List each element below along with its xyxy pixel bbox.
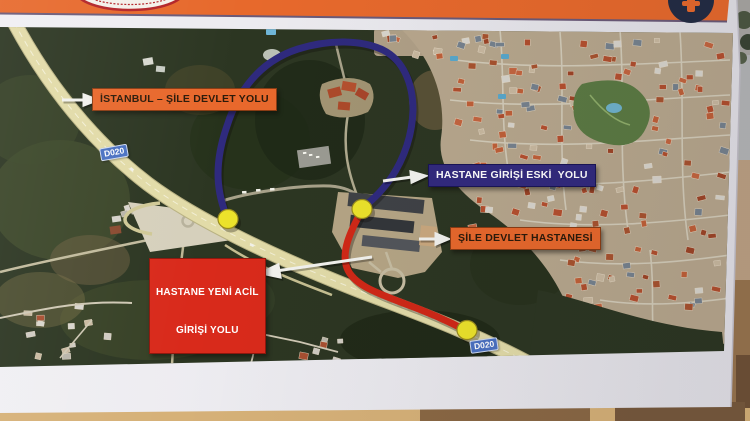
house-roof: [485, 207, 493, 214]
house-roof: [528, 202, 536, 209]
house-roof: [694, 298, 702, 304]
house-roof: [656, 97, 664, 103]
house-roof: [467, 101, 474, 106]
callout-istanbul-sile-road: İSTANBUL – ŞİLE DEVLET YOLU: [92, 88, 277, 111]
house-roof: [633, 39, 642, 46]
house-roof: [521, 102, 530, 108]
house-roof: [708, 233, 716, 238]
house-roof: [714, 260, 721, 266]
house-roof: [496, 109, 503, 114]
house-roof: [586, 144, 592, 149]
house-roof: [621, 204, 629, 210]
house-roof: [580, 40, 588, 48]
house-roof: [716, 52, 725, 59]
house-roof: [299, 352, 309, 360]
house-roof: [499, 131, 507, 138]
house-roof: [659, 85, 666, 90]
house-roof: [478, 129, 484, 135]
house-roof: [530, 145, 537, 150]
house-roof: [563, 125, 571, 130]
house-roof: [608, 149, 614, 154]
house-roof: [524, 188, 531, 196]
house-roof: [684, 160, 691, 166]
house-roof: [627, 272, 635, 278]
marker-junction-west: [218, 210, 238, 229]
house-roof: [489, 60, 497, 66]
house-roof: [695, 208, 703, 215]
house-roof: [706, 112, 714, 119]
callout-sile-state-hospital: ŞİLE DEVLET HASTANESİ: [450, 227, 601, 250]
house-roof: [652, 176, 661, 183]
house-roof: [475, 35, 482, 42]
signboard-photo: İSTANBUL – ŞİLE DEVLET YOLU HASTANE GİRİ…: [0, 0, 750, 421]
house-roof: [706, 105, 714, 113]
house-roof: [37, 315, 45, 321]
house-roof: [630, 61, 636, 67]
house-roof: [576, 214, 582, 220]
house-roof: [615, 73, 623, 80]
house-roof: [715, 195, 724, 200]
house-roof: [603, 56, 613, 63]
house-roof: [517, 88, 524, 94]
house-roof: [695, 288, 703, 294]
house-roof: [596, 273, 605, 281]
satellite-map: [0, 22, 735, 370]
house-roof: [696, 70, 703, 76]
house-roof: [525, 39, 531, 46]
house-roof: [516, 70, 523, 76]
house-roof: [605, 43, 615, 50]
house-roof: [531, 83, 539, 90]
house-roof: [436, 53, 443, 59]
house-roof: [501, 75, 510, 83]
house-roof: [686, 75, 693, 80]
marker-junction-east: [457, 321, 477, 340]
house-roof: [432, 35, 438, 40]
callout-line-2: GİRİŞİ YOLU: [156, 325, 259, 338]
callout-new-emergency-road: HASTANE YENİ ACİL GİRİŞİ YOLU: [149, 258, 266, 354]
house-roof: [505, 111, 512, 116]
house-roof: [495, 42, 504, 46]
house-roof: [651, 126, 658, 132]
house-roof: [510, 88, 517, 94]
house-roof: [581, 284, 588, 291]
house-roof: [35, 353, 42, 360]
house-roof: [567, 259, 575, 266]
house-roof: [483, 38, 489, 44]
house-roof: [498, 114, 505, 119]
house-roof: [635, 246, 642, 252]
house-roof: [712, 100, 719, 105]
house-roof: [654, 68, 660, 74]
house-roof: [468, 63, 476, 69]
marker-hospital-entrance: [352, 200, 372, 219]
house-roof: [589, 186, 595, 194]
house-roof: [639, 213, 647, 219]
house-roof: [337, 339, 343, 343]
house-roof: [606, 254, 614, 261]
house-roof: [508, 143, 517, 148]
house-roof: [624, 227, 631, 235]
house-roof: [681, 271, 687, 277]
house-roof: [684, 303, 693, 310]
callout-line-1: HASTANE YENİ ACİL: [156, 287, 259, 300]
house-roof: [68, 323, 75, 329]
house-roof: [644, 163, 652, 169]
house-roof: [568, 71, 574, 75]
house-roof: [557, 135, 564, 142]
house-roof: [553, 209, 563, 217]
house-roof: [653, 281, 660, 288]
house-roof: [721, 100, 730, 106]
house-roof: [719, 122, 726, 129]
house-roof: [104, 333, 112, 340]
house-roof: [614, 41, 622, 48]
house-roof: [665, 138, 671, 144]
house-roof: [389, 35, 396, 42]
house-roof: [636, 289, 642, 293]
house-roof: [654, 38, 659, 43]
house-roof: [478, 46, 486, 54]
house-roof: [508, 123, 514, 128]
house-roof: [453, 87, 462, 92]
house-roof: [579, 206, 586, 213]
house-roof: [700, 229, 707, 236]
house-roof: [609, 276, 615, 282]
signboard-graphic: [0, 0, 750, 421]
house-roof: [37, 321, 44, 327]
house-roof: [697, 86, 702, 92]
house-roof: [473, 116, 482, 122]
house-roof: [575, 277, 582, 283]
house-roof: [623, 262, 631, 269]
house-roof: [559, 83, 566, 90]
house-roof: [641, 220, 647, 227]
callout-old-entrance-road: HASTANE GİRİŞİ ESKİ YOLU: [428, 164, 596, 187]
house-roof: [689, 225, 697, 233]
house-roof: [476, 197, 482, 204]
